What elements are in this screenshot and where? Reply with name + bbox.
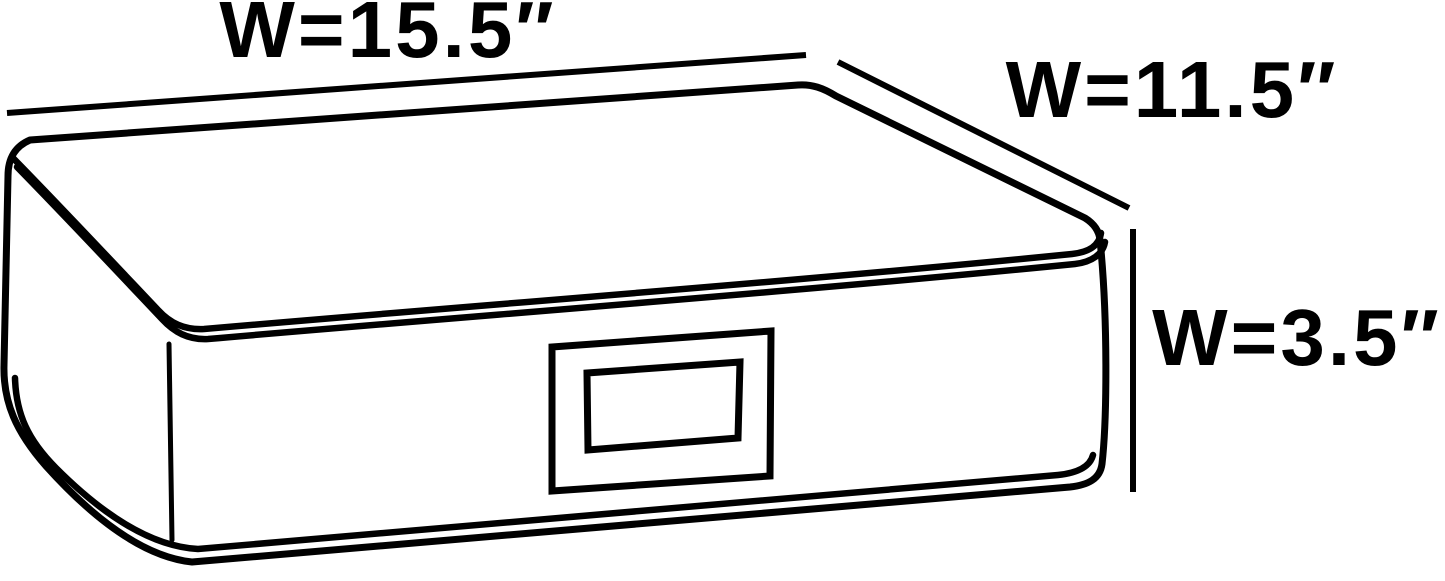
lid-seam-lower-line <box>17 167 1105 339</box>
storage-box-diagram-canvas: W=15.5″ W=11.5″ W=3.5″ <box>0 0 1445 581</box>
label-holder-window <box>587 362 740 450</box>
dimension-label-width: W=15.5″ <box>219 0 556 74</box>
dimension-label-depth: W=11.5″ <box>1006 45 1339 134</box>
storage-box-illustration <box>4 85 1106 562</box>
lid-seam-upper-line <box>13 158 1101 329</box>
front-left-edge-line <box>169 344 172 540</box>
dimension-label-height: W=3.5″ <box>1152 293 1442 382</box>
dimension-diagram: W=15.5″ W=11.5″ W=3.5″ <box>0 0 1445 581</box>
